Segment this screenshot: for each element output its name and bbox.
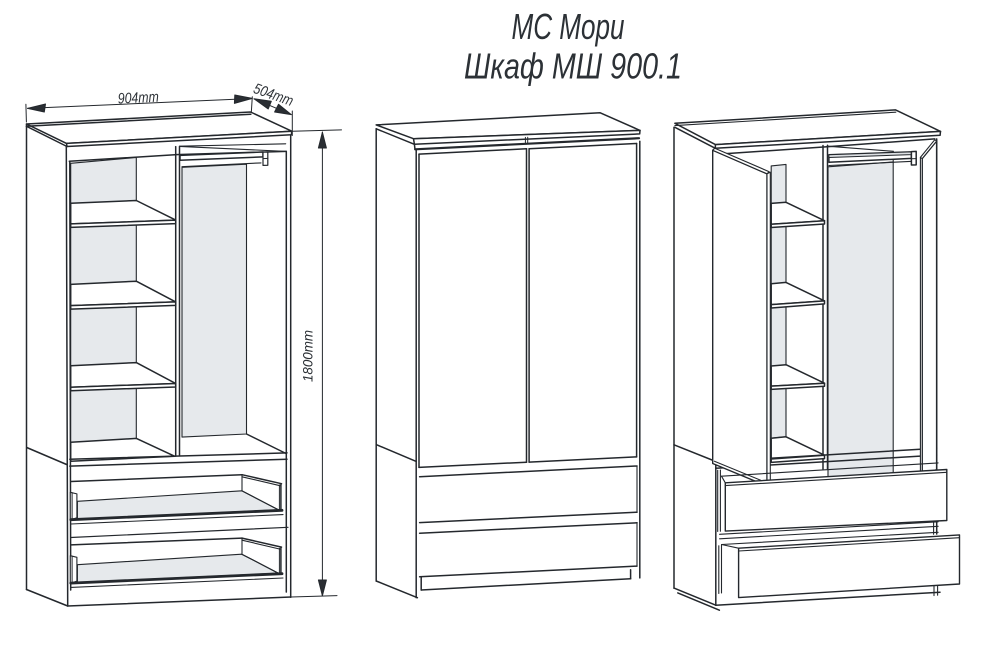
svg-text:504mm: 504mm: [251, 80, 295, 110]
svg-text:МС Мори: МС Мори: [512, 6, 625, 47]
svg-text:1800mm: 1800mm: [300, 330, 316, 382]
svg-text:Шкаф МШ 900.1: Шкаф МШ 900.1: [464, 46, 682, 87]
svg-text:904mm: 904mm: [117, 89, 159, 108]
